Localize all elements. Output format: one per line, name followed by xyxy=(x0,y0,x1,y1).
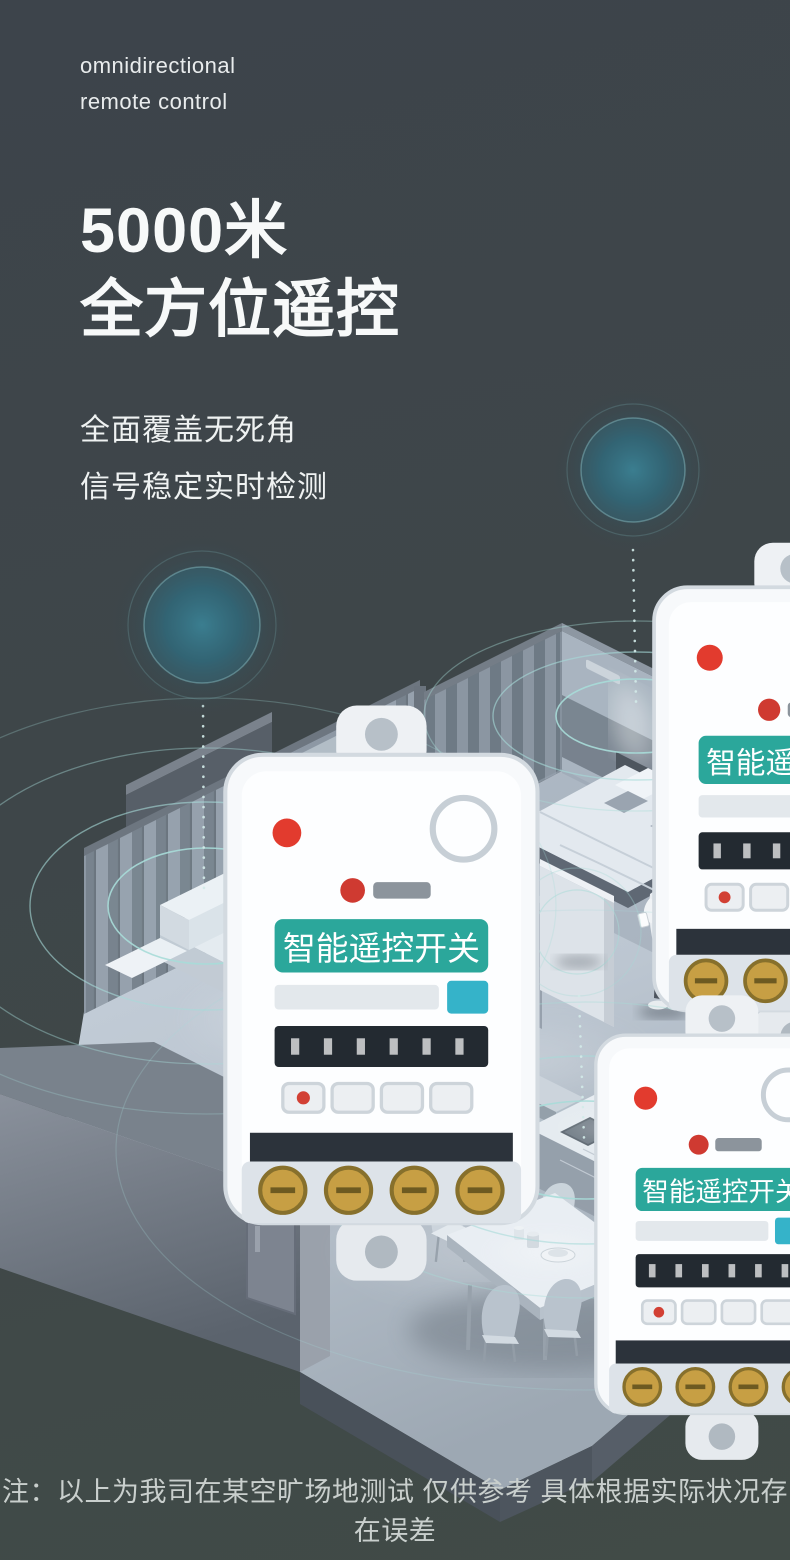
title-line-2: 全方位遥控 xyxy=(80,271,400,350)
page-title: 5000米 全方位遥控 xyxy=(80,192,400,350)
subtitles: 全面覆盖无死角 信号稳定实时检测 xyxy=(80,402,400,516)
title-line-1: 5000米 xyxy=(80,192,400,271)
eyebrow: omnidirectional remote control xyxy=(80,48,400,120)
subtitle-line-1: 全面覆盖无死角 xyxy=(80,402,400,459)
door-handle xyxy=(255,1226,260,1252)
eyebrow-line-2: remote control xyxy=(80,84,400,120)
eyebrow-line-1: omnidirectional xyxy=(80,48,400,84)
footnote: 注：以上为我司在某空旷场地测试 仅供参考 具体根据实际状况存在误差 xyxy=(0,1470,790,1548)
product-poster: 智能遥控开关 xyxy=(0,0,790,1560)
subtitle-line-2: 信号稳定实时检测 xyxy=(80,459,400,516)
copy-block: omnidirectional remote control 5000米 全方位… xyxy=(80,48,400,516)
